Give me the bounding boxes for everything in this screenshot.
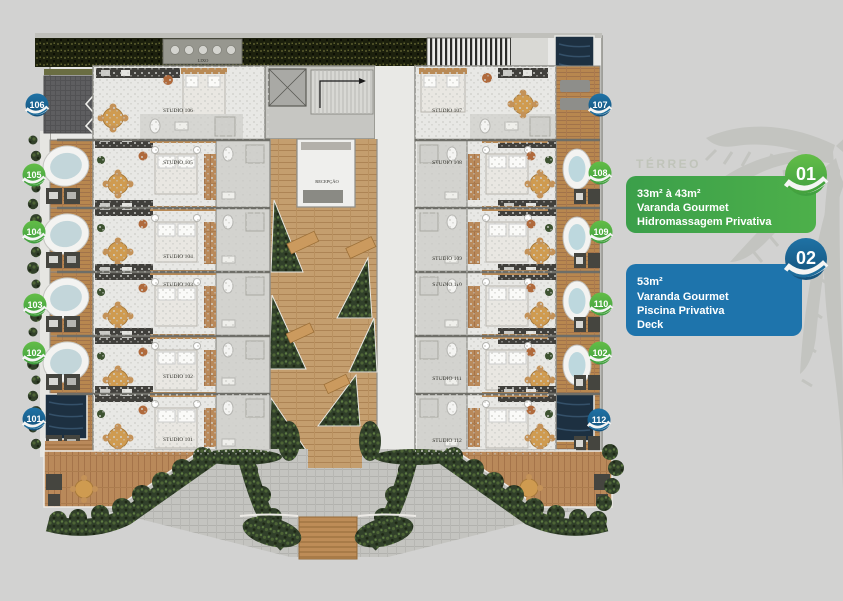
svg-text:Deck: Deck [637,319,664,331]
svg-text:02: 02 [796,248,816,268]
svg-text:106: 106 [29,100,44,110]
svg-text:108: 108 [592,168,607,178]
svg-text:104: 104 [26,227,41,237]
svg-text:109: 109 [593,227,608,237]
svg-text:Varanda Gourmet: Varanda Gourmet [637,202,729,214]
svg-text:53m²: 53m² [637,276,663,288]
svg-text:101: 101 [26,414,41,424]
svg-text:01: 01 [796,164,816,184]
svg-text:TÉRREO: TÉRREO [636,156,701,171]
svg-text:Varanda Gourmet: Varanda Gourmet [637,291,729,303]
svg-text:RECEPÇÃO: RECEPÇÃO [315,179,339,184]
svg-text:103: 103 [27,300,42,310]
svg-text:102: 102 [592,348,607,358]
svg-text:105: 105 [26,170,41,180]
svg-text:LIXO: LIXO [198,58,209,63]
svg-text:33m² à 43m²: 33m² à 43m² [637,188,701,200]
svg-text:102: 102 [26,348,41,358]
svg-text:107: 107 [592,100,607,110]
svg-text:Piscina Privativa: Piscina Privativa [637,305,725,317]
svg-text:112: 112 [592,415,607,425]
svg-text:Hidromassagem Privativa: Hidromassagem Privativa [637,216,772,228]
svg-text:110: 110 [594,299,609,309]
